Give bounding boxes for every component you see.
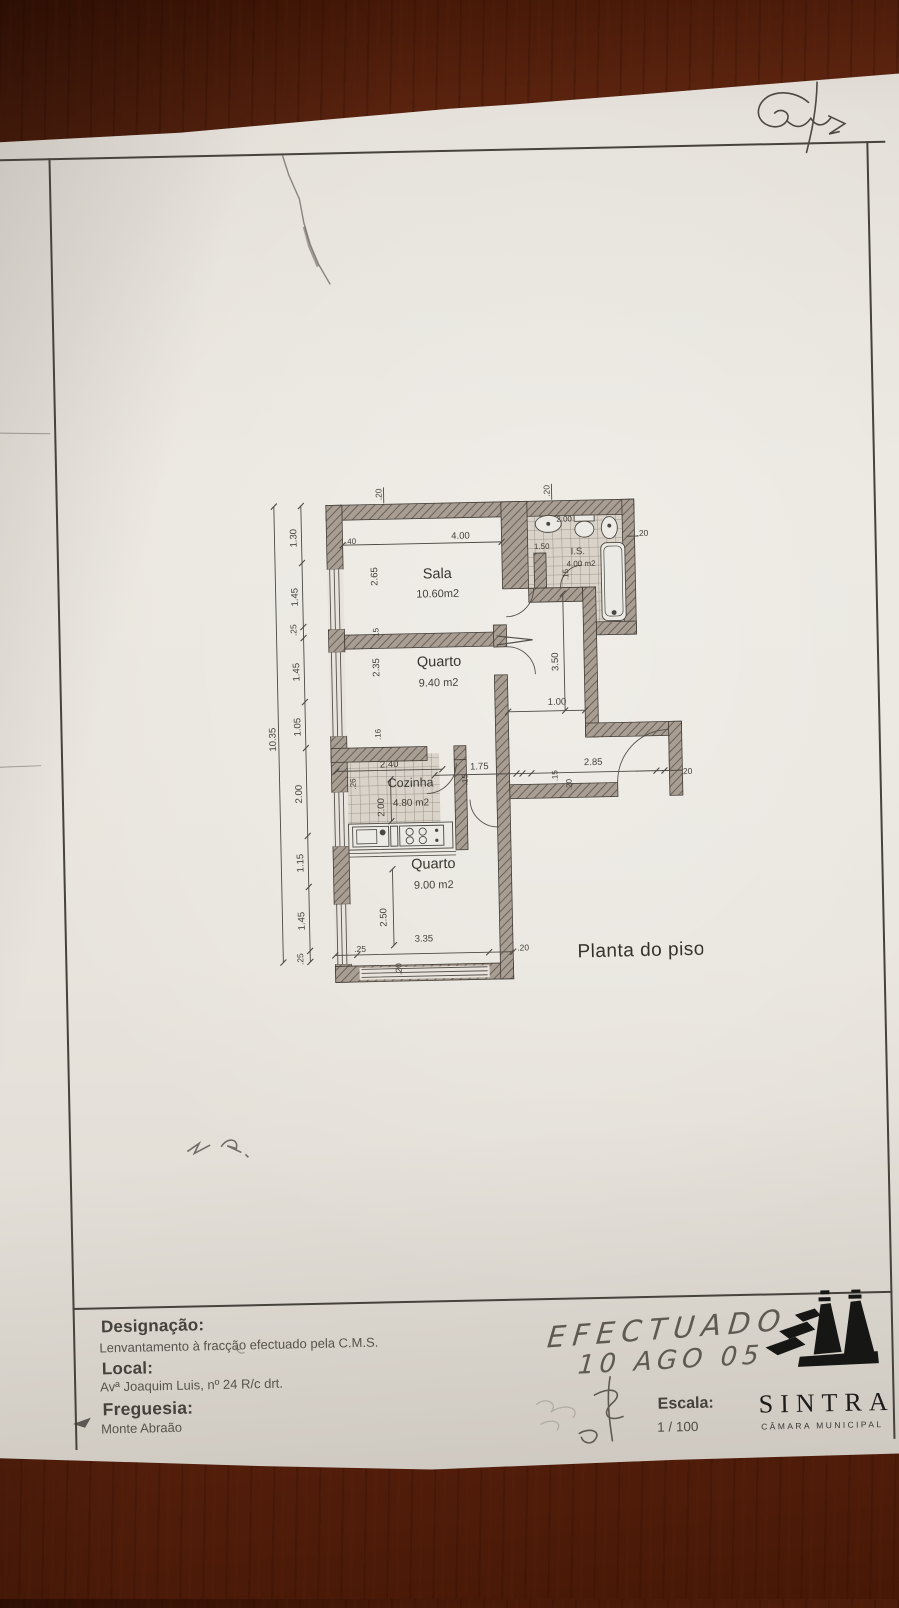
paper-crease (0, 765, 41, 768)
room-label-is: I.S. (571, 546, 585, 557)
dim-label: 10.35 (267, 728, 278, 752)
escala-label: Escala: (658, 1395, 714, 1414)
escala-value: 1 / 100 (657, 1419, 699, 1435)
dim-label: 3.35 (415, 933, 434, 944)
dim-label: .20 (636, 528, 648, 538)
dim-label: 1.75 (470, 761, 489, 772)
paper-crease (0, 432, 50, 434)
dim-label: 1.00 (548, 697, 567, 708)
dim-label: .15 (371, 627, 380, 639)
dim-label: 4.00 (451, 531, 470, 542)
dim-label: .15 (460, 773, 469, 785)
dim-label: .16 (373, 728, 382, 740)
designacao-label: Designação: (101, 1315, 205, 1337)
dim-label: .40 (345, 537, 357, 546)
freguesia-value: Monte Abraão (101, 1420, 182, 1437)
sintra-logo-subtext: CÂMARA MUNICIPAL (761, 1419, 883, 1432)
room-area-quarto1: 9.40 m2 (419, 677, 459, 690)
toilet-tank (574, 515, 594, 521)
frame-left-line (48, 158, 77, 1450)
room-label-cozinha: Cozinha (388, 775, 434, 790)
sintra-logo-icon (758, 1289, 885, 1388)
room-label-quarto1: Quarto (417, 654, 462, 671)
dim-label: 2.65 (369, 567, 380, 586)
local-value: Avª Joaquim Luis, nº 24 R/c drt. (100, 1376, 283, 1395)
dim-label: .15 (561, 568, 570, 580)
dim-label: 1.30 (288, 529, 299, 548)
dim-label: 2.00 (556, 514, 572, 523)
dim-label: .25 (354, 944, 366, 954)
room-area-sala: 10.60m2 (416, 588, 459, 601)
freguesia-label: Freguesia: (102, 1398, 193, 1421)
room-area-is: 4.00 m2 (567, 559, 597, 569)
dim-label: .20 (373, 488, 383, 500)
room-label-sala: Sala (423, 566, 453, 583)
plan-title: Planta do piso (577, 939, 704, 963)
room-label-quarto2: Quarto (411, 856, 456, 873)
dim-label: .20 (393, 963, 403, 975)
toilet-bowl (575, 521, 594, 537)
dim-label: 1.05 (292, 718, 303, 737)
dim-label: .20 (680, 766, 692, 776)
bidet (601, 516, 617, 538)
dim-label: .25 (295, 953, 305, 965)
signature-top-right (720, 73, 872, 166)
sintra-logo-text: SINTRA (758, 1387, 895, 1420)
dim-label: .26 (349, 778, 358, 790)
dim-label: 1.15 (295, 854, 306, 873)
room-area-quarto2: 9.00 m2 (414, 879, 454, 892)
dim-label: .20 (565, 778, 574, 790)
dim-label: 1.50 (534, 542, 550, 551)
room-area-cozinha: 4.80 m2 (393, 797, 430, 809)
dim-label: 1.45 (296, 912, 307, 931)
dim-label: .15 (550, 770, 559, 782)
dim-label: .25 (288, 624, 298, 636)
document-content: 1.30 1.45 .25 1.45 1.05 2.00 1.15 1.45 .… (0, 0, 899, 1608)
dim-label: .20 (517, 942, 529, 952)
dim-label: 2.50 (378, 908, 389, 927)
dim-label: 2.40 (380, 759, 399, 770)
dim-label: 3.50 (550, 652, 561, 671)
local-label: Local: (102, 1358, 154, 1379)
dim-label: 1.45 (291, 663, 302, 682)
dim-label: 2.35 (371, 658, 382, 677)
dim-label: 2.85 (584, 757, 603, 768)
pen-scribble-mark (179, 1122, 260, 1166)
dim-label: 1.45 (290, 588, 301, 607)
dim-label: 2.00 (294, 785, 305, 804)
dim-label: 2.00 (376, 798, 387, 817)
floor-plan-drawing: 1.30 1.45 .25 1.45 1.05 2.00 1.15 1.45 .… (263, 473, 704, 1007)
scratch-mark (274, 148, 347, 294)
dim-label: .20 (541, 485, 551, 497)
stray-pen-mark (231, 1344, 247, 1356)
kitchen-counter (348, 822, 456, 857)
signature-bottom (532, 1374, 663, 1449)
arrow-mark (71, 1416, 97, 1431)
